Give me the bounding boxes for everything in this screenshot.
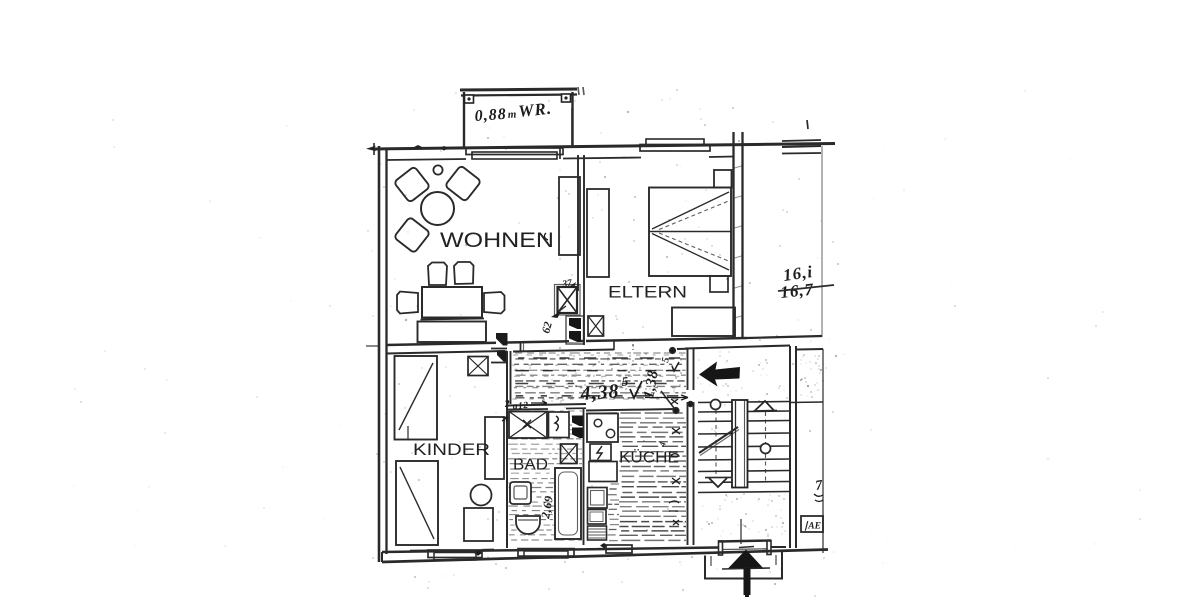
svg-text:a12: a12 — [513, 401, 529, 412]
svg-text:0,88: 0,88 — [474, 106, 507, 125]
svg-text:WOHNEN: WOHNEN — [440, 229, 554, 252]
svg-text:m: m — [507, 108, 517, 121]
svg-text:2: 2 — [503, 399, 510, 410]
svg-text:4,38: 4,38 — [579, 380, 620, 405]
svg-text:∣AE: ∣AE — [804, 521, 821, 532]
svg-text:ELTERN: ELTERN — [608, 284, 687, 302]
svg-text:BAD: BAD — [513, 457, 548, 474]
svg-text:WR.: WR. — [517, 99, 553, 121]
svg-text:KÜCHE: KÜCHE — [619, 449, 679, 467]
svg-text:KINDER: KINDER — [413, 441, 490, 459]
